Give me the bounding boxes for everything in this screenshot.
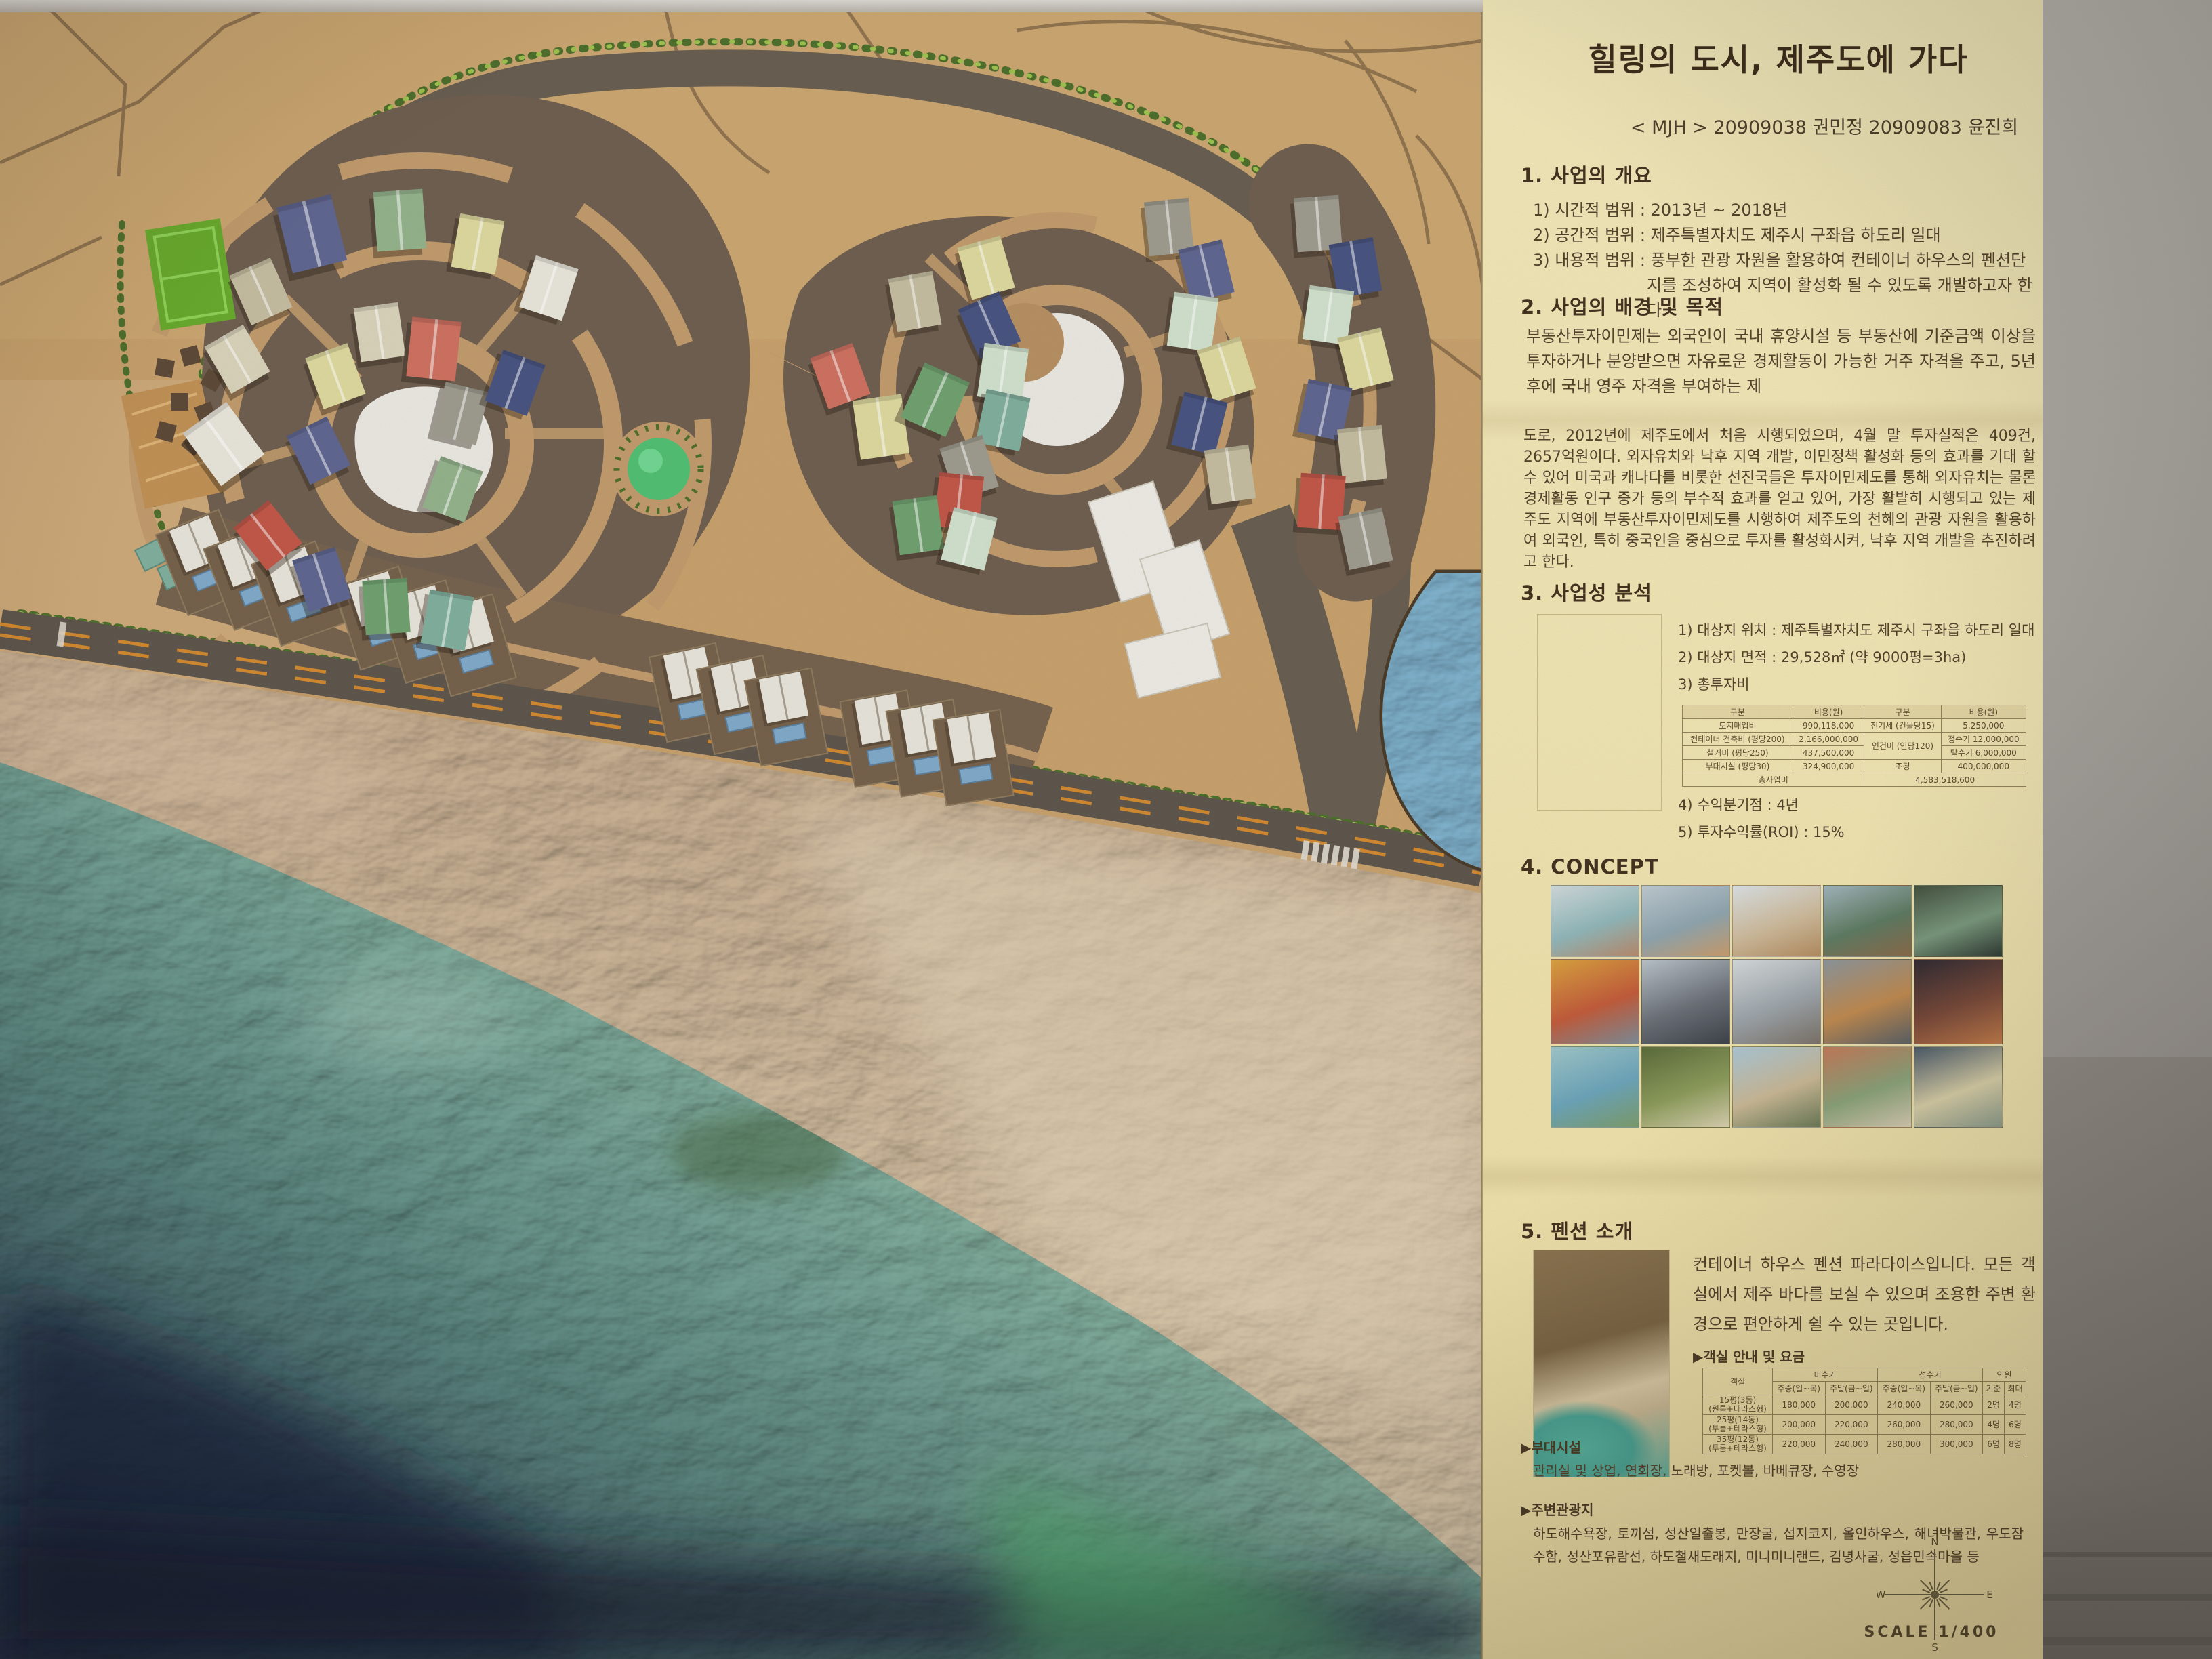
background-paragraph: 도로, 2012년에 제주도에서 처음 시행되었으며, 4월 말 투자실적은 4… [1523, 426, 2036, 573]
site-aerial-photo [1537, 614, 1662, 811]
section3-heading: 3. 사업성 분석 [1521, 577, 1652, 606]
compass-w: W [1877, 1589, 1886, 1601]
compass-n: N [1931, 1537, 1938, 1548]
concept-photo [1551, 1046, 1639, 1128]
tennis-court [145, 218, 236, 331]
scale-label: SCALE 1/400 [1830, 1624, 2033, 1641]
wall [2043, 0, 2212, 1057]
pension-house [446, 213, 504, 280]
pension-house [888, 495, 945, 561]
photo-of-architecture-model-with-poster: 힐링의 도시, 제주도에 가다 < MJH > 20909038 권민정 209… [0, 0, 2212, 1659]
concept-photo [1823, 1046, 1912, 1128]
pension-house [358, 578, 411, 641]
section1-item: 2) 공간적 범위 : 제주특별자치도 제주시 구좌읍 하도리 일대 [1533, 223, 2036, 248]
pension-house [369, 189, 427, 258]
beach-lot [933, 710, 1014, 806]
section3-item: 5) 투자수익률(ROI) : 15% [1678, 819, 1949, 846]
section5-heading: 5. 펜션 소개 [1521, 1216, 1633, 1244]
concept-photo [1914, 1046, 2003, 1128]
room-fee-table: 객실비수기성수기인원주중(일~목)주말(금~일)주중(일~목)주말(금~일)기준… [1702, 1368, 2026, 1454]
compass-s: S [1931, 1641, 1938, 1652]
attractions-label: ▶주변관광지 [1521, 1499, 1593, 1519]
concept-photo [1641, 959, 1730, 1044]
concept-photo [1732, 1046, 1821, 1128]
section2-heading: 2. 사업의 배경 및 목적 [1521, 291, 1723, 320]
facilities-label: ▶부대시설 [1521, 1437, 1581, 1456]
section1-heading: 1. 사업의 개요 [1521, 160, 1652, 188]
concept-photo [1641, 885, 1730, 957]
floor-line [2043, 1552, 2212, 1557]
floor-line [2043, 1594, 2212, 1601]
investment-table: 구분비용(원)구분비용(원)토지매입비990,118,000전기세 (건물당15… [1682, 705, 2026, 787]
concept-photo [1823, 959, 1912, 1044]
poster-authors: < MJH > 20909038 권민정 20909083 윤진희 [1613, 112, 2036, 139]
concept-photo [1914, 885, 2003, 957]
pension-house [401, 316, 462, 388]
concept-photo [1551, 959, 1639, 1044]
concept-photo [1823, 885, 1912, 957]
fee-table-label: ▶객실 안내 및 요금 [1693, 1346, 1805, 1366]
section3-item: 4) 수익분기점 : 4년 [1678, 792, 1949, 819]
poster-fold [1483, 1156, 2043, 1197]
pension-house [848, 394, 910, 466]
compass-e: E [1986, 1589, 1992, 1601]
facilities-body: 관리실 및 상업, 연회장, 노래방, 포켓볼, 바베큐장, 수영장 [1533, 1460, 2021, 1479]
concept-photo [1551, 885, 1639, 957]
pension-house [1200, 445, 1257, 510]
section3-item: 2) 대상지 면적 : 29,528㎡ (약 9000평=3ha) [1678, 644, 2037, 671]
dome-garden [611, 422, 706, 516]
section4-heading: 4. CONCEPT [1521, 855, 1659, 878]
pension-house [884, 271, 943, 338]
wall-top-strip [0, 0, 1483, 12]
pension-house [350, 302, 407, 368]
section3-item: 1) 대상지 위치 : 제주특별자치도 제주시 구좌읍 하도리 일대 [1678, 617, 2037, 644]
concept-photo [1641, 1046, 1730, 1128]
pension-house [415, 589, 474, 656]
section1-item: 1) 시간적 범위 : 2013년 ~ 2018년 [1533, 198, 2036, 223]
section3-item: 3) 총투자비 [1678, 671, 2037, 698]
floor-line [2043, 1637, 2212, 1645]
floor [2043, 1057, 2212, 1659]
poster-title: 힐링의 도시, 제주도에 가다 [1526, 35, 2030, 80]
concept-photo [1914, 959, 2003, 1044]
section2-body: 부동산투자이민제는 외국인이 국내 휴양시설 등 부동산에 기준금액 이상을 투… [1526, 324, 2036, 399]
scale-model-board [0, 0, 1483, 1659]
concept-photo [1732, 959, 1821, 1044]
section5-body: 컨테이너 하우스 펜션 파라다이스입니다. 모든 객실에서 제주 바다를 보실 … [1693, 1250, 2036, 1339]
concept-photo [1732, 885, 1821, 957]
